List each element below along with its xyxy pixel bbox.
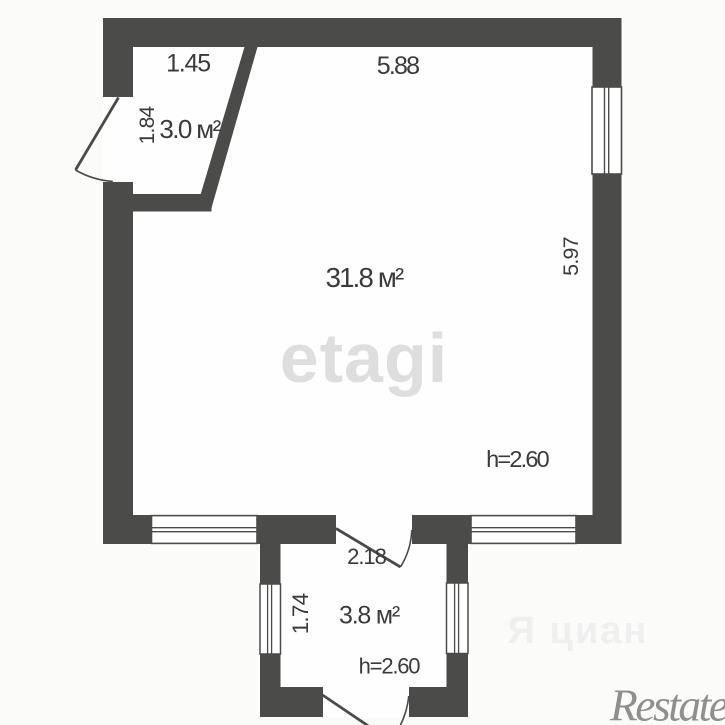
- svg-text:31.8 м²: 31.8 м²: [326, 262, 404, 293]
- svg-text:Restate: Restate: [609, 680, 725, 725]
- svg-text:2.18: 2.18: [347, 544, 387, 569]
- svg-text:h=2.60: h=2.60: [486, 446, 549, 472]
- svg-text:3.0 м²: 3.0 м²: [159, 114, 221, 144]
- svg-text:1.84: 1.84: [136, 106, 159, 145]
- svg-text:1.74: 1.74: [288, 593, 313, 634]
- svg-text:3.8 м²: 3.8 м²: [339, 602, 400, 630]
- svg-text:h=2.60: h=2.60: [359, 654, 421, 679]
- svg-text:1.45: 1.45: [166, 50, 210, 78]
- svg-text:5.97: 5.97: [559, 237, 583, 276]
- svg-text:5.88: 5.88: [377, 52, 419, 80]
- svg-text:etagi: etagi: [280, 319, 448, 397]
- svg-text:Я циан: Я циан: [508, 610, 649, 652]
